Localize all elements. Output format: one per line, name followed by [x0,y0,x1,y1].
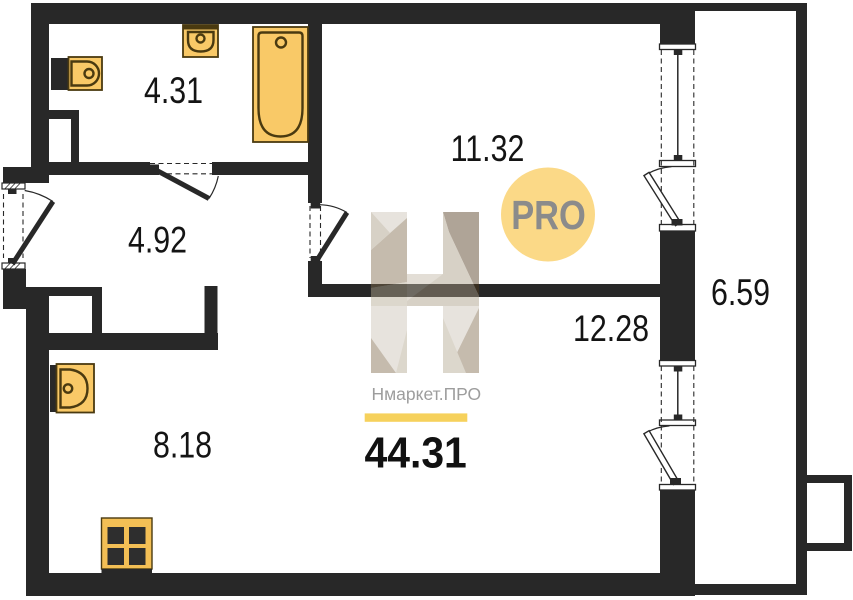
svg-text:4.31: 4.31 [144,70,203,112]
svg-text:4.92: 4.92 [128,220,187,262]
svg-text:8.18: 8.18 [153,425,212,467]
svg-text:44.31: 44.31 [365,428,467,476]
svg-text:12.28: 12.28 [573,308,649,350]
svg-text:11.32: 11.32 [451,128,525,170]
svg-text:PRO: PRO [511,193,586,238]
svg-text:Нмаркет.ПРО: Нмаркет.ПРО [372,384,482,404]
svg-text:6.59: 6.59 [711,272,770,314]
